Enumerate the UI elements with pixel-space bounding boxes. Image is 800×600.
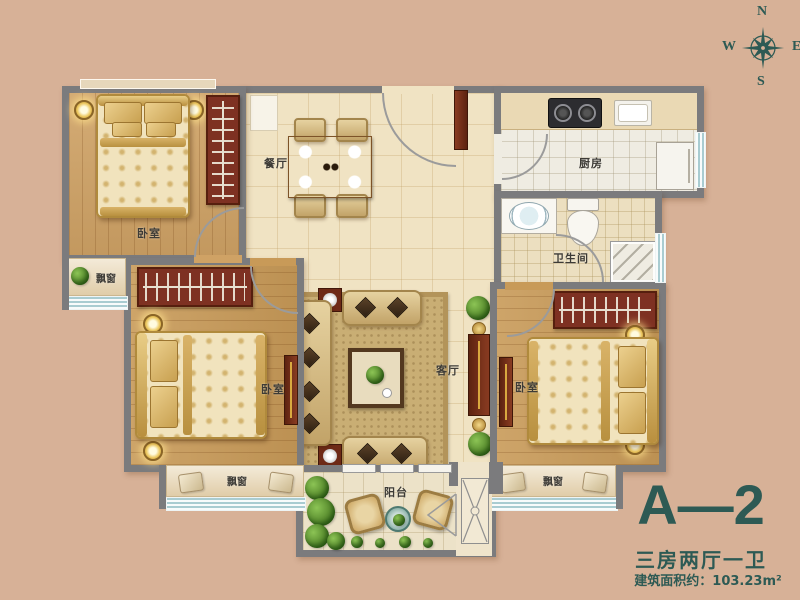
bed-headboard bbox=[137, 333, 147, 437]
bay-pillow bbox=[582, 471, 608, 493]
side-table-top bbox=[323, 449, 337, 463]
plant-icon bbox=[366, 366, 384, 384]
bay-pillow bbox=[178, 471, 204, 493]
sofa-cushion bbox=[357, 443, 378, 464]
double-bed bbox=[96, 94, 190, 218]
sofa-cushion bbox=[387, 297, 408, 318]
bed-pillow bbox=[618, 346, 646, 388]
kitchen-label: 厨房 bbox=[571, 155, 611, 171]
bay-pillow bbox=[268, 471, 294, 493]
bedroom-bottom-right-label: 卧室 bbox=[505, 379, 549, 395]
stove-burner bbox=[554, 104, 572, 122]
bay-window-bottom-right-label: 飘窗 bbox=[531, 473, 575, 488]
plant-icon bbox=[466, 296, 490, 320]
wall-segment bbox=[489, 462, 503, 494]
flue-shaft-box bbox=[461, 478, 489, 544]
plant-icon bbox=[305, 476, 329, 500]
door-opening bbox=[250, 258, 296, 266]
shower bbox=[611, 242, 655, 282]
window bbox=[695, 132, 706, 188]
kitchen-sink bbox=[614, 100, 652, 126]
wardrobe bbox=[553, 291, 657, 329]
window bbox=[166, 497, 306, 511]
plant-icon bbox=[393, 514, 405, 526]
compass-north-label: N bbox=[757, 4, 767, 20]
balcony-door-swing bbox=[426, 492, 458, 538]
living-room-label: 客厅 bbox=[428, 362, 468, 378]
wardrobe-rail bbox=[143, 286, 247, 288]
sliding-door-panel bbox=[380, 464, 414, 473]
area-label: 建筑面积约：103.23m² bbox=[628, 570, 788, 589]
bedroom-bottom-left-label: 卧室 bbox=[251, 381, 295, 397]
stove bbox=[548, 98, 602, 128]
entry-cabinet bbox=[250, 95, 278, 131]
sofa-top bbox=[342, 290, 422, 326]
refrigerator bbox=[656, 142, 694, 190]
window bbox=[490, 497, 618, 511]
bed-pillow bbox=[150, 386, 178, 428]
floor-plan-page: 餐厅 客厅 bbox=[0, 0, 800, 600]
wall-segment bbox=[62, 255, 69, 310]
sink-basin bbox=[618, 104, 648, 122]
compass-icon: N E S W bbox=[722, 6, 800, 90]
bed-pillow bbox=[144, 102, 182, 124]
decor-knob bbox=[472, 418, 486, 432]
wall-segment bbox=[616, 465, 623, 509]
plant-icon bbox=[468, 432, 492, 456]
compass-south-label: S bbox=[757, 74, 765, 90]
plant-icon bbox=[307, 498, 335, 526]
bed-pillow bbox=[618, 392, 646, 434]
window bbox=[655, 233, 666, 283]
tv-cabinet-handle bbox=[478, 341, 480, 409]
bed-pillow bbox=[112, 122, 142, 137]
bay-window-top-left-label: 飘窗 bbox=[88, 270, 124, 285]
compass-east-label: E bbox=[792, 39, 800, 55]
plant-icon bbox=[423, 538, 433, 548]
unit-code: A—2 bbox=[625, 474, 777, 536]
wardrobe-rail bbox=[559, 309, 651, 311]
compass-rose-icon bbox=[740, 25, 786, 71]
sofa-cushion bbox=[391, 443, 412, 464]
bedroom-top-left-label: 卧室 bbox=[99, 225, 199, 241]
wall-lamp bbox=[74, 100, 94, 120]
stove-burner bbox=[578, 104, 596, 122]
bed-pillow bbox=[146, 122, 176, 137]
wall-lamp bbox=[143, 441, 163, 461]
tv-cabinet bbox=[468, 334, 490, 416]
wardrobe bbox=[206, 95, 240, 205]
bed-foot bbox=[100, 207, 186, 216]
plant-icon bbox=[351, 536, 363, 548]
bay-pillow bbox=[500, 471, 526, 493]
plant-icon bbox=[375, 538, 385, 548]
window bbox=[64, 296, 128, 310]
plant-icon bbox=[327, 532, 345, 550]
door-opening bbox=[494, 134, 502, 184]
double-bed bbox=[135, 331, 267, 439]
bay-window-bottom-left-label: 飘窗 bbox=[215, 473, 259, 488]
bed-headboard bbox=[647, 339, 657, 443]
wall-segment bbox=[159, 465, 166, 509]
wardrobe-rail bbox=[222, 101, 224, 199]
plant-icon bbox=[305, 524, 329, 548]
bed-fold bbox=[100, 138, 186, 147]
dining-table bbox=[288, 136, 372, 198]
bed-fold bbox=[183, 335, 192, 435]
dining-room-label: 餐厅 bbox=[256, 155, 296, 171]
balcony-table bbox=[385, 506, 411, 532]
plant-icon bbox=[399, 536, 411, 548]
bed-pillow bbox=[150, 340, 178, 382]
window bbox=[80, 79, 216, 89]
sofa-cushion bbox=[355, 297, 376, 318]
compass-west-label: W bbox=[722, 39, 736, 55]
bed-pillow bbox=[104, 102, 142, 124]
layout-type: 三房两厅一卫 bbox=[625, 544, 777, 573]
coffee-table bbox=[348, 348, 404, 408]
wardrobe bbox=[137, 267, 253, 307]
sliding-door-panel bbox=[418, 464, 452, 473]
flue-cross-icon bbox=[462, 479, 488, 543]
entry-door-leaf bbox=[454, 90, 468, 150]
sliding-door-panel bbox=[342, 464, 376, 473]
bed-fold bbox=[601, 341, 610, 441]
washbasin bbox=[509, 202, 549, 230]
plant-icon bbox=[71, 267, 89, 285]
coffee-table-dish bbox=[382, 388, 392, 398]
refrigerator-handle bbox=[688, 149, 690, 183]
